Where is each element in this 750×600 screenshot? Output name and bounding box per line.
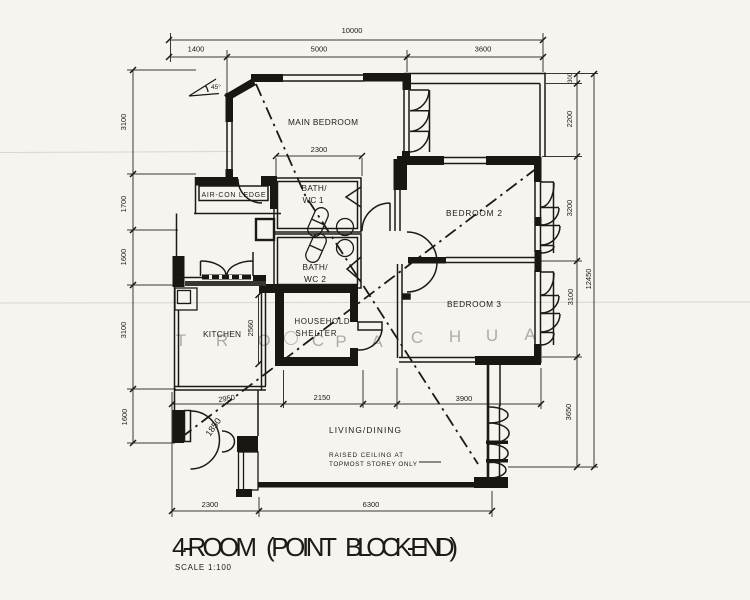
svg-text:12450: 12450 bbox=[584, 269, 593, 290]
svg-text:BATH/: BATH/ bbox=[303, 262, 329, 272]
svg-text:3100: 3100 bbox=[119, 322, 128, 339]
svg-text:HOUSEHOLD: HOUSEHOLD bbox=[295, 317, 350, 326]
svg-text:5000: 5000 bbox=[311, 45, 328, 54]
svg-text:KITCHEN: KITCHEN bbox=[203, 329, 241, 339]
svg-text:3650: 3650 bbox=[564, 404, 573, 421]
svg-text:1600: 1600 bbox=[120, 409, 129, 426]
svg-text:H: H bbox=[449, 327, 461, 346]
svg-text:1600: 1600 bbox=[119, 249, 128, 266]
svg-text:3200: 3200 bbox=[565, 200, 574, 217]
svg-text:SHELTER: SHELTER bbox=[296, 329, 337, 338]
svg-text:10000: 10000 bbox=[342, 26, 363, 35]
svg-text:C: C bbox=[411, 328, 423, 347]
svg-text:45°: 45° bbox=[211, 83, 221, 91]
svg-text:6300: 6300 bbox=[363, 500, 380, 509]
svg-text:O: O bbox=[257, 331, 270, 350]
svg-text:MAIN BEDROOM: MAIN BEDROOM bbox=[288, 117, 358, 127]
svg-text:LIVING/DINING: LIVING/DINING bbox=[329, 425, 401, 435]
svg-text:BATH/: BATH/ bbox=[302, 183, 328, 193]
svg-text:2150: 2150 bbox=[314, 393, 331, 402]
svg-text:3900: 3900 bbox=[456, 394, 473, 403]
svg-text:WC 2: WC 2 bbox=[304, 274, 326, 284]
svg-text:P: P bbox=[335, 332, 346, 351]
svg-text:U: U bbox=[486, 326, 498, 345]
svg-text:AIR-CON LEDGE: AIR-CON LEDGE bbox=[202, 192, 266, 199]
svg-text:RAISED CEILING AT: RAISED CEILING AT bbox=[329, 452, 403, 459]
svg-text:1700: 1700 bbox=[119, 196, 128, 213]
svg-text:2300: 2300 bbox=[202, 500, 219, 509]
svg-text:TOPMOST STOREY ONLY: TOPMOST STOREY ONLY bbox=[329, 461, 418, 468]
svg-text:4-ROOM: 4-ROOM bbox=[172, 532, 257, 562]
svg-text:3100: 3100 bbox=[566, 289, 575, 306]
svg-text:T: T bbox=[176, 331, 186, 350]
svg-text:WC 1: WC 1 bbox=[303, 195, 324, 205]
svg-text:BLOCK-END): BLOCK-END) bbox=[345, 532, 458, 562]
svg-text:2300: 2300 bbox=[311, 145, 328, 154]
svg-text:3100: 3100 bbox=[119, 114, 128, 131]
svg-text:BEDROOM 3: BEDROOM 3 bbox=[447, 299, 501, 309]
svg-text:300: 300 bbox=[568, 72, 574, 83]
svg-text:2560: 2560 bbox=[246, 320, 255, 337]
svg-text:1400: 1400 bbox=[188, 45, 205, 54]
svg-text:3600: 3600 bbox=[475, 45, 492, 54]
svg-text:SCALE 1:100: SCALE 1:100 bbox=[175, 563, 232, 572]
svg-text:2200: 2200 bbox=[565, 111, 574, 128]
svg-text:(POINT: (POINT bbox=[266, 532, 337, 562]
svg-text:BEDROOM 2: BEDROOM 2 bbox=[446, 208, 502, 218]
